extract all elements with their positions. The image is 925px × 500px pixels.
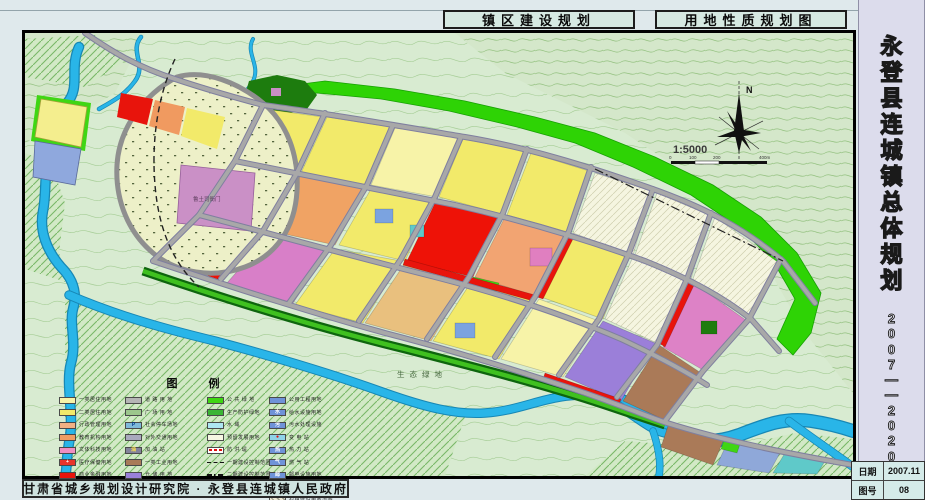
legend-item: 水给水设施用地 bbox=[269, 408, 333, 418]
sheet-number-value: 08 bbox=[884, 481, 924, 499]
heritage-site-label: 鲁土司衙门 bbox=[193, 195, 221, 203]
eco-green-label: 生态绿地 bbox=[397, 369, 447, 379]
legend-label: 文体科技用地 bbox=[79, 447, 112, 453]
plan-years-vertical: 2007——2020 bbox=[859, 312, 924, 464]
legend-column-3: 公 共 绿 地生产防护绿地水 域预留发展用地防 洪 堤一期建设控制范围二期建设控… bbox=[207, 395, 271, 493]
title-char: 规 bbox=[880, 244, 902, 266]
legend-label: 水 域 bbox=[227, 422, 240, 428]
legend-item: ●变 电 站 bbox=[269, 433, 333, 443]
legend-item: 一期建设控制范围 bbox=[207, 458, 271, 468]
legend-item: 水 域 bbox=[207, 420, 271, 430]
title-char: 镇 bbox=[880, 166, 902, 188]
year-char: 2 bbox=[888, 404, 895, 418]
legend-swatch bbox=[125, 459, 142, 466]
legend-item: 一类工业用地 bbox=[125, 458, 178, 468]
legend-label: 给水设施用地 bbox=[289, 410, 322, 416]
legend-label: 社会停车场地 bbox=[145, 422, 178, 428]
sheet-title-left: 镇区建设规划 bbox=[443, 10, 635, 29]
legend-item: P社会停车场地 bbox=[125, 420, 178, 430]
legend-label: 一类居住用地 bbox=[79, 397, 112, 403]
legend-label: 公用工程用地 bbox=[289, 397, 322, 403]
legend-swatch bbox=[125, 397, 142, 404]
legend-swatch: 水 bbox=[269, 409, 286, 416]
legend-item: 公 共 绿 地 bbox=[207, 395, 271, 405]
legend-swatch bbox=[59, 472, 76, 479]
north-label: N bbox=[746, 85, 753, 95]
legend-swatch: 污 bbox=[269, 422, 286, 429]
legend-label: 商业金融用地 bbox=[79, 472, 112, 478]
title-char: 登 bbox=[880, 62, 902, 84]
legend-title: 图 例 bbox=[59, 375, 327, 391]
legend-item: 文体科技用地 bbox=[59, 445, 112, 455]
legend-label: 一期建设控制范围 bbox=[227, 460, 271, 466]
legend-swatch bbox=[207, 397, 224, 404]
legend-swatch bbox=[207, 422, 224, 429]
legend-swatch bbox=[125, 434, 142, 441]
legend-swatch bbox=[207, 472, 224, 479]
scale-tick: 100 bbox=[689, 155, 697, 160]
legend-label: 变 电 站 bbox=[289, 435, 309, 441]
plan-sheet: 镇区建设规划 用地性质规划图 bbox=[0, 0, 925, 500]
legend-swatch bbox=[269, 397, 286, 404]
legend-label: 生产防护绿地 bbox=[227, 410, 260, 416]
legend-label: 邮电设施用地 bbox=[289, 472, 322, 478]
legend-item: 教育机构用地 bbox=[59, 433, 112, 443]
legend-item: 道 路 用 地 bbox=[125, 395, 178, 405]
year-char: 7 bbox=[888, 358, 895, 372]
date-value: 2007.11 bbox=[884, 462, 924, 480]
year-char: 2 bbox=[888, 434, 895, 448]
legend-label: 一类工业用地 bbox=[145, 460, 178, 466]
legend-item: 气燃 气 站 bbox=[269, 458, 333, 468]
title-block-table: 日期 2007.11 图号 08 bbox=[851, 461, 925, 500]
year-char: 2 bbox=[888, 312, 895, 326]
title-char: 连 bbox=[880, 114, 902, 136]
legend-label: 加 油 站 bbox=[145, 447, 165, 453]
legend-item: 预留发展用地 bbox=[207, 433, 271, 443]
legend-swatch: 邮 bbox=[269, 472, 286, 479]
sheet-number-label: 图号 bbox=[852, 481, 884, 499]
legend-swatch bbox=[207, 434, 224, 441]
legend-label: 教育机构用地 bbox=[79, 435, 112, 441]
legend-item: 广 场 用 地 bbox=[125, 408, 178, 418]
scale-tick: 200 bbox=[713, 155, 721, 160]
legend-item: 一类居住用地 bbox=[59, 395, 112, 405]
legend-swatch bbox=[59, 409, 76, 416]
credit-box: 甘肃省城乡规划设计研究院 · 永登县连城镇人民政府 bbox=[22, 479, 349, 498]
year-char: — bbox=[885, 388, 898, 402]
legend-item: 行政管理用地 bbox=[59, 420, 112, 430]
date-row: 日期 2007.11 bbox=[852, 462, 924, 481]
legend-item: 防 洪 堤 bbox=[207, 445, 271, 455]
legend-swatch: 油 bbox=[125, 447, 142, 454]
legend-swatch bbox=[207, 447, 224, 454]
legend-label: 广 场 用 地 bbox=[145, 410, 173, 416]
legend-item: 热热 力 站 bbox=[269, 445, 333, 455]
legend-item: 公用工程用地 bbox=[269, 395, 333, 405]
year-char: 0 bbox=[888, 327, 895, 341]
year-char: — bbox=[885, 373, 898, 387]
legend-swatch bbox=[207, 409, 224, 416]
year-char: 0 bbox=[888, 343, 895, 357]
map-canvas: N 1:5000 0 100 200 400m 生态绿地 鲁土司衙门 图 例 bbox=[22, 30, 856, 479]
sheet-title-right: 用地性质规划图 bbox=[655, 10, 847, 29]
title-char: 总 bbox=[880, 192, 902, 214]
legend-label: 二期建设控制范围 bbox=[227, 472, 271, 478]
legend-label: 公 共 绿 地 bbox=[227, 397, 255, 403]
legend-swatch bbox=[59, 447, 76, 454]
legend-swatch bbox=[59, 397, 76, 404]
legend-item: +医疗保健用地 bbox=[59, 458, 112, 468]
title-panel: 永登县连城镇总体规划 2007——2020 bbox=[858, 0, 925, 500]
legend-column-2: 道 路 用 地广 场 用 地P社会停车场地对外交通用地油加 油 站一类工业用地仓… bbox=[125, 395, 178, 493]
legend-swatch: + bbox=[59, 459, 76, 466]
legend-label: 仓 储 用 地 bbox=[145, 472, 173, 478]
legend-swatch bbox=[207, 459, 224, 466]
title-char: 县 bbox=[880, 88, 902, 110]
legend-swatch: P bbox=[125, 422, 142, 429]
legend-label: 热 力 站 bbox=[289, 447, 309, 453]
legend-label: 行政管理用地 bbox=[79, 422, 112, 428]
legend-swatch bbox=[59, 434, 76, 441]
legend-item: 油加 油 站 bbox=[125, 445, 178, 455]
legend-swatch bbox=[125, 409, 142, 416]
legend-swatch: 气 bbox=[269, 459, 286, 466]
legend-swatch: ● bbox=[269, 434, 286, 441]
title-char: 体 bbox=[880, 218, 902, 240]
legend-label: 医疗保健用地 bbox=[79, 460, 112, 466]
title-char: 永 bbox=[880, 36, 902, 58]
legend-swatch bbox=[125, 472, 142, 479]
date-label: 日期 bbox=[852, 462, 884, 480]
legend-label: 防 洪 堤 bbox=[227, 447, 247, 453]
plan-title-vertical: 永登县连城镇总体规划 bbox=[859, 36, 924, 292]
legend-swatch bbox=[59, 422, 76, 429]
legend-label: 二类居住用地 bbox=[79, 410, 112, 416]
legend-label: 对外交通用地 bbox=[145, 435, 178, 441]
title-char: 划 bbox=[880, 270, 902, 292]
legend-item: 污污水处理设施 bbox=[269, 420, 333, 430]
scale-tick: 400m bbox=[759, 155, 771, 160]
title-char: 城 bbox=[880, 140, 902, 162]
legend-column-1: 一类居住用地二类居住用地行政管理用地教育机构用地文体科技用地+医疗保健用地商业金… bbox=[59, 395, 112, 493]
year-char: 0 bbox=[888, 419, 895, 433]
legend-swatch: 热 bbox=[269, 447, 286, 454]
legend-item: 对外交通用地 bbox=[125, 433, 178, 443]
legend-item: 生产防护绿地 bbox=[207, 408, 271, 418]
legend-label: 污水处理设施 bbox=[289, 422, 322, 428]
legend-label: 预留发展用地 bbox=[227, 435, 260, 441]
legend-label: 燃 气 站 bbox=[289, 460, 309, 466]
legend-label: 道 路 用 地 bbox=[145, 397, 173, 403]
legend-item: 二类居住用地 bbox=[59, 408, 112, 418]
sheet-number-row: 图号 08 bbox=[852, 481, 924, 499]
